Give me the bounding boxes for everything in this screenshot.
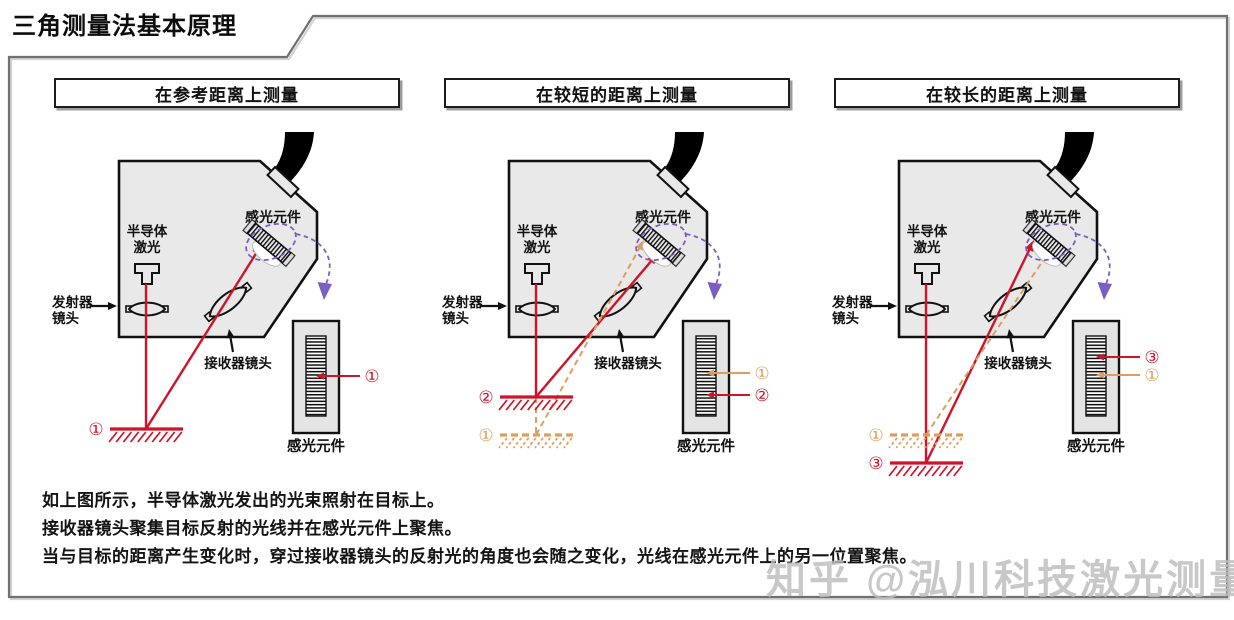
svg-text:激光: 激光 [134,239,161,255]
svg-text:半导体: 半导体 [907,223,948,239]
svg-text:镜头: 镜头 [442,310,469,326]
svg-text:激光: 激光 [524,239,552,255]
svg-text:①: ① [478,426,493,445]
panel-title: 在较长的距离上测量 [926,81,1088,106]
svg-text:③: ③ [1144,348,1159,367]
panel-reference-distance: 在参考距离上测量 感光元件半导体激光发射器镜头接收器镜头①①感光元件 [40,78,430,498]
description-line: 如上图所示，半导体激光发出的光束照射在目标上。 [42,492,917,510]
panel-shorter-distance: 在较短的距离上测量 感光元件半导体激光发射器镜头接收器镜头②①①②感光元件 [430,78,820,498]
svg-text:①: ① [868,426,883,445]
page: 三角测量法基本原理 在参考距离上测量 感光元件半导体激光发射器镜头接收器镜头①①… [0,0,1234,620]
svg-text:镜头: 镜头 [832,310,860,326]
svg-text:发射器: 发射器 [51,294,93,310]
panel-title: 在较短的距离上测量 [536,81,698,106]
panel-header: 在参考距离上测量 [54,78,400,108]
svg-text:半导体: 半导体 [517,223,558,239]
page-title: 三角测量法基本原理 [12,10,237,44]
svg-text:发射器: 发射器 [441,294,483,310]
sensor-diagram: 感光元件半导体激光发射器镜头接收器镜头①③③①感光元件 [820,130,1210,482]
svg-text:感光元件: 感光元件 [1067,437,1125,455]
svg-text:接收器镜头: 接收器镜头 [594,355,662,371]
svg-text:接收器镜头: 接收器镜头 [204,355,272,371]
sensor-diagram: 感光元件半导体激光发射器镜头接收器镜头②①①②感光元件 [430,130,820,482]
svg-text:①: ① [754,364,769,383]
panel-longer-distance: 在较长的距离上测量 感光元件半导体激光发射器镜头接收器镜头①③③①感光元件 [820,78,1210,498]
svg-text:感光元件: 感光元件 [287,437,345,455]
svg-text:①: ① [364,367,379,386]
svg-text:②: ② [754,386,769,405]
svg-text:①: ① [88,420,103,439]
svg-text:感光元件: 感光元件 [677,437,735,455]
svg-text:②: ② [478,388,493,407]
sensor-diagram: 感光元件半导体激光发射器镜头接收器镜头①①感光元件 [40,130,430,482]
svg-text:发射器: 发射器 [831,294,873,310]
svg-text:③: ③ [868,454,883,473]
svg-text:接收器镜头: 接收器镜头 [984,355,1052,371]
svg-text:半导体: 半导体 [127,223,168,239]
panel-header: 在较短的距离上测量 [444,78,790,108]
description-line: 接收器镜头聚集目标反射的光线并在感光元件上聚焦。 [42,520,917,538]
svg-text:激光: 激光 [914,239,942,255]
panel-title: 在参考距离上测量 [155,81,299,106]
svg-text:①: ① [1144,366,1159,385]
svg-text:镜头: 镜头 [52,310,79,326]
panel-header: 在较长的距离上测量 [834,78,1180,108]
watermark: 知乎 @泓川科技激光测量 [766,547,1234,605]
